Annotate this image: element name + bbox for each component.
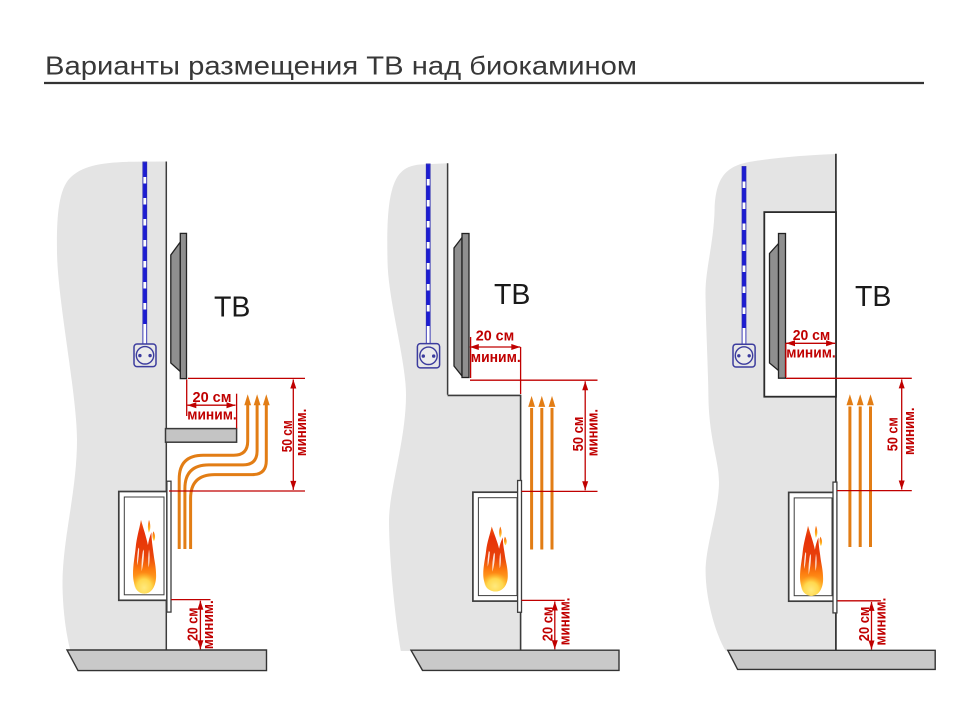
svg-text:50 см: 50 см — [884, 417, 901, 451]
svg-text:миним.: миним. — [293, 409, 310, 457]
svg-text:20 см: 20 см — [793, 327, 831, 344]
svg-text:миним.: миним. — [873, 598, 890, 646]
svg-text:миним.: миним. — [901, 407, 918, 455]
svg-text:миним.: миним. — [471, 349, 521, 366]
svg-text:миним.: миним. — [557, 598, 574, 646]
svg-text:20 см: 20 см — [185, 608, 202, 642]
svg-text:миним.: миним. — [786, 345, 836, 362]
svg-text:20 см: 20 см — [856, 607, 873, 642]
svg-text:20 см: 20 см — [193, 389, 232, 406]
svg-text:ТВ: ТВ — [855, 281, 891, 313]
svg-text:миним.: миним. — [200, 600, 217, 649]
svg-text:20 см: 20 см — [540, 607, 557, 642]
svg-text:ТВ: ТВ — [214, 292, 250, 324]
svg-text:20 см: 20 см — [476, 328, 515, 345]
svg-text:Варианты размещения ТВ над био: Варианты размещения ТВ над биокамином — [45, 50, 637, 80]
svg-text:миним.: миним. — [187, 406, 237, 423]
svg-text:миним.: миним. — [585, 409, 602, 456]
svg-text:ТВ: ТВ — [494, 279, 530, 311]
